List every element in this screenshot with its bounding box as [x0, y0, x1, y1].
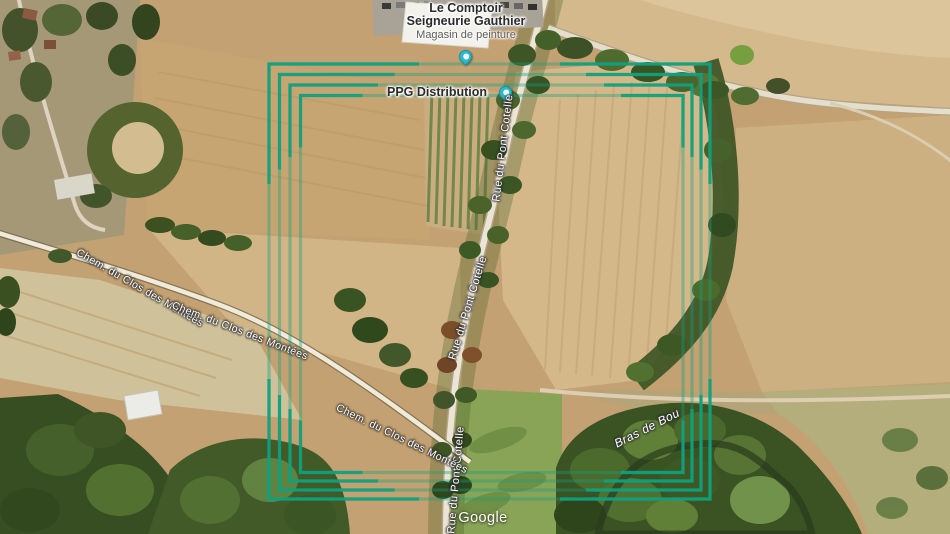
poi-ppg-distribution[interactable]: PPG Distribution [387, 85, 487, 99]
google-watermark[interactable]: Google [458, 510, 507, 526]
selection-overlay [0, 0, 950, 534]
overlay-ring-sides [269, 64, 710, 499]
poi-pin-icon[interactable] [458, 50, 474, 66]
overlay-ring-corners [269, 64, 710, 499]
poi-pin-icon[interactable] [498, 86, 514, 102]
map-viewport[interactable]: Le Comptoir Seigneurie Gauthier Magasin … [0, 0, 950, 534]
